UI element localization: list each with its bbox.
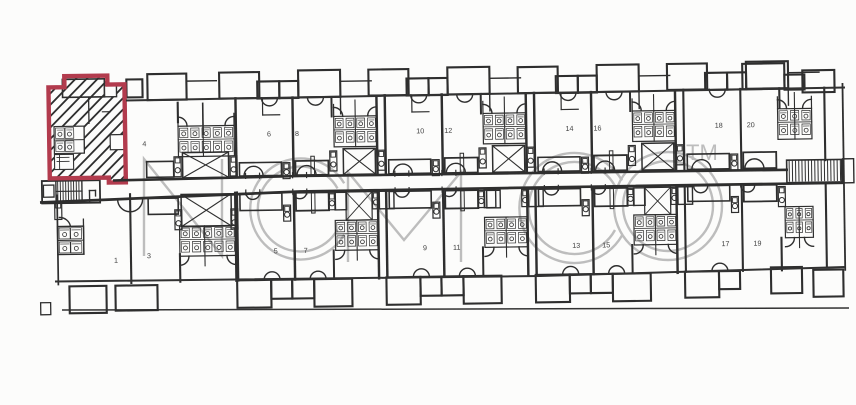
svg-text:8: 8 [295, 129, 299, 138]
svg-text:14: 14 [565, 124, 573, 133]
svg-text:3: 3 [147, 251, 151, 260]
svg-text:11: 11 [453, 243, 461, 252]
svg-text:5: 5 [274, 246, 278, 255]
svg-text:4: 4 [142, 139, 146, 148]
svg-text:20: 20 [747, 120, 755, 129]
svg-text:9: 9 [423, 243, 427, 252]
svg-text:18: 18 [715, 121, 723, 130]
svg-text:16: 16 [593, 123, 601, 132]
svg-text:1: 1 [114, 256, 118, 265]
svg-text:7: 7 [304, 246, 308, 255]
svg-text:TM: TM [686, 140, 718, 165]
svg-text:17: 17 [721, 239, 729, 248]
svg-text:6: 6 [267, 129, 271, 138]
svg-text:15: 15 [602, 240, 610, 249]
svg-text:13: 13 [572, 241, 580, 250]
svg-text:10: 10 [416, 126, 424, 135]
svg-text:12: 12 [444, 126, 452, 135]
svg-text:19: 19 [753, 239, 761, 248]
